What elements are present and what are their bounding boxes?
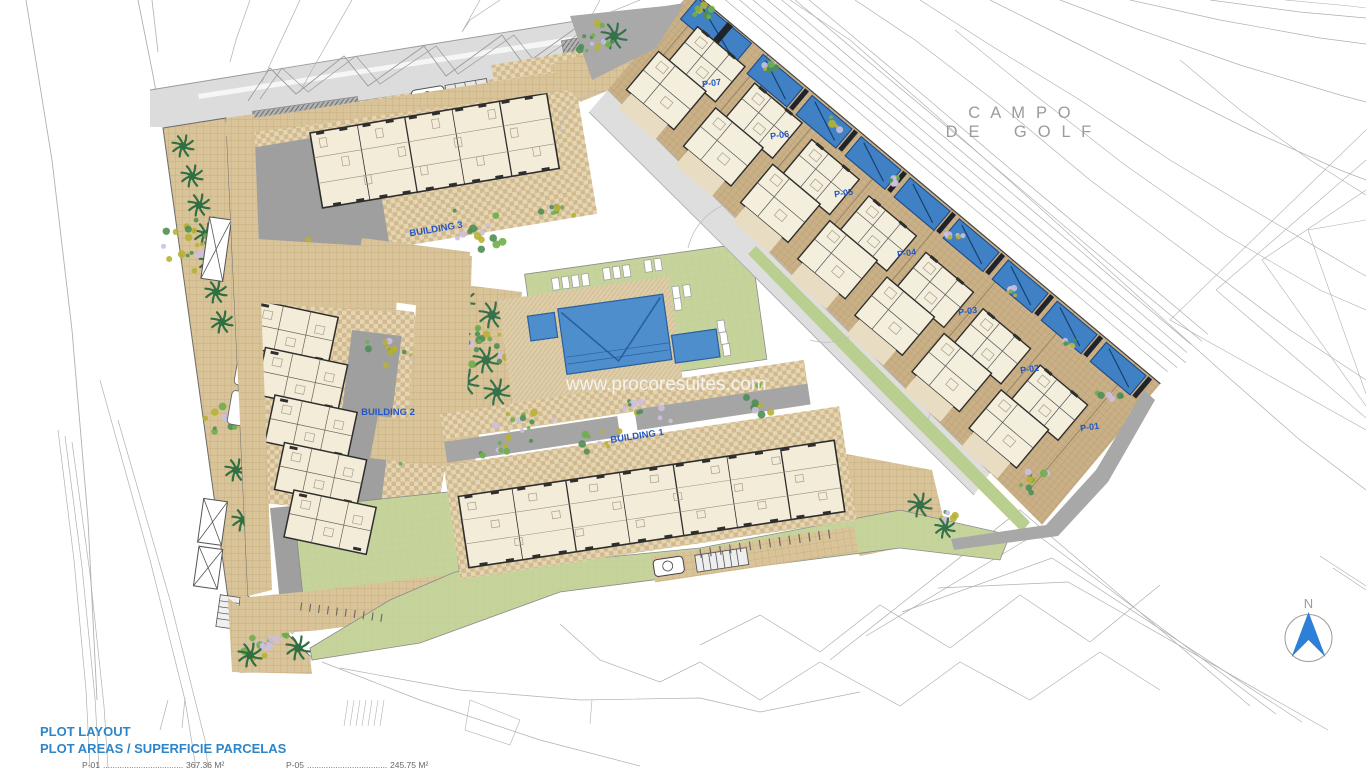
svg-text:D E G O L F: D E G O L F	[946, 123, 1095, 141]
svg-text:www.procoresuites.com: www.procoresuites.com	[565, 374, 767, 395]
svg-text:P-05: P-05	[286, 760, 304, 768]
svg-text:..............................: ..................................	[307, 760, 387, 768]
svg-text:P-01: P-01	[82, 760, 100, 768]
svg-text:PLOT AREAS / SUPERFICIE PARCEL: PLOT AREAS / SUPERFICIE PARCELAS	[40, 741, 287, 756]
svg-text:PLOT LAYOUT: PLOT LAYOUT	[40, 724, 131, 739]
svg-text:N: N	[1304, 596, 1313, 611]
svg-text:C A M P O: C A M P O	[968, 104, 1074, 122]
svg-text:245.75 M²: 245.75 M²	[390, 760, 428, 768]
svg-text:367.36 M²: 367.36 M²	[186, 760, 224, 768]
svg-text:BUILDING 2: BUILDING 2	[361, 407, 415, 418]
svg-text:..............................: ..................................	[103, 760, 183, 768]
